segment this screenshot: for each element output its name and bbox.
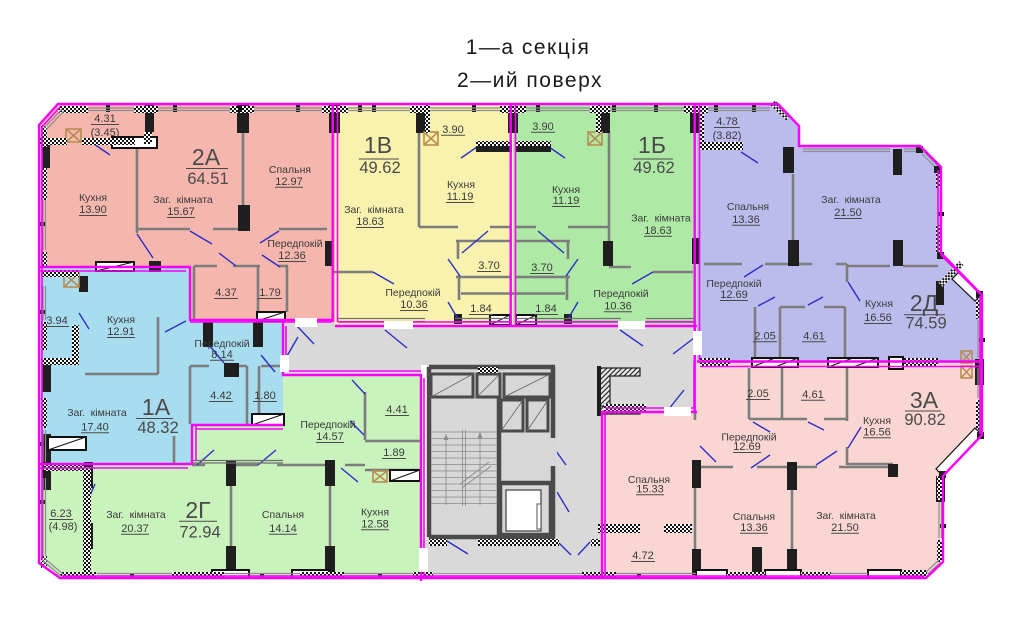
svg-text:20.37: 20.37 [121, 523, 149, 535]
svg-text:3.70: 3.70 [478, 260, 499, 272]
svg-text:3.70: 3.70 [531, 262, 552, 274]
svg-text:1Б: 1Б [638, 132, 666, 158]
svg-text:11.19: 11.19 [447, 191, 474, 203]
svg-text:Спальня: Спальня [269, 164, 311, 176]
svg-text:4.72: 4.72 [632, 550, 653, 562]
svg-text:13.36: 13.36 [740, 522, 768, 534]
svg-text:Спальня: Спальня [262, 509, 304, 521]
svg-text:10.36: 10.36 [400, 299, 428, 311]
svg-text:12.97: 12.97 [275, 176, 303, 188]
svg-text:4.78: 4.78 [716, 116, 737, 128]
svg-text:14.14: 14.14 [269, 523, 297, 535]
svg-text:2А: 2А [192, 144, 221, 170]
svg-text:11.19: 11.19 [553, 195, 580, 207]
svg-text:2.05: 2.05 [754, 331, 775, 343]
svg-text:18.63: 18.63 [356, 216, 384, 228]
svg-text:14.57: 14.57 [316, 431, 344, 443]
svg-text:Заг. кімната: Заг. кімната [153, 194, 213, 206]
svg-text:2Г: 2Г [185, 497, 211, 523]
svg-text:4.41: 4.41 [386, 404, 407, 416]
svg-text:(3.45): (3.45) [91, 127, 120, 139]
svg-text:Передпокій: Передпокій [267, 238, 322, 250]
svg-text:21.50: 21.50 [834, 207, 862, 219]
svg-text:2.05: 2.05 [747, 388, 768, 400]
svg-text:Заг. кімната: Заг. кімната [344, 204, 404, 216]
svg-text:Заг. кімната: Заг. кімната [816, 510, 876, 522]
svg-text:48.32: 48.32 [137, 419, 178, 437]
svg-text:74.59: 74.59 [905, 315, 946, 333]
svg-text:4.61: 4.61 [803, 331, 824, 343]
svg-text:13.36: 13.36 [732, 214, 760, 226]
svg-text:72.94: 72.94 [179, 524, 220, 542]
svg-text:21.50: 21.50 [831, 522, 859, 534]
svg-text:1.84: 1.84 [470, 303, 491, 315]
svg-text:1.84: 1.84 [535, 303, 556, 315]
svg-text:1—а секція: 1—а секція [466, 36, 591, 59]
svg-text:12.36: 12.36 [278, 250, 306, 262]
svg-text:90.82: 90.82 [904, 411, 945, 429]
svg-text:Кухня: Кухня [447, 179, 475, 191]
svg-text:4.42: 4.42 [210, 390, 231, 402]
svg-text:3А: 3А [910, 387, 939, 413]
svg-text:8.14: 8.14 [211, 349, 232, 361]
svg-text:4.31: 4.31 [94, 113, 115, 125]
svg-text:Заг. кімната: Заг. кімната [821, 194, 881, 206]
svg-text:49.62: 49.62 [359, 159, 400, 177]
svg-text:12.91: 12.91 [107, 326, 135, 338]
svg-text:1.80: 1.80 [254, 390, 275, 402]
svg-text:Кухня: Кухня [863, 415, 891, 427]
svg-text:13.90: 13.90 [79, 204, 107, 216]
svg-text:3.94: 3.94 [46, 315, 67, 327]
svg-text:Заг. кімната: Заг. кімната [106, 509, 166, 521]
svg-text:16.56: 16.56 [863, 427, 891, 439]
svg-text:12.69: 12.69 [733, 441, 761, 453]
svg-text:3.90: 3.90 [532, 121, 553, 133]
svg-text:Кухня: Кухня [79, 192, 107, 204]
svg-text:6.23: 6.23 [50, 508, 71, 520]
svg-text:2—ий поверх: 2—ий поверх [457, 69, 603, 92]
svg-text:Передпокій: Передпокій [300, 419, 355, 431]
svg-text:15.67: 15.67 [167, 206, 195, 218]
svg-text:3.90: 3.90 [442, 124, 463, 136]
svg-text:12.69: 12.69 [720, 289, 748, 301]
svg-text:(4.98): (4.98) [49, 521, 78, 533]
svg-text:16.56: 16.56 [864, 312, 892, 324]
svg-text:1А: 1А [142, 394, 171, 420]
svg-text:Кухня: Кухня [865, 298, 893, 310]
svg-text:4.61: 4.61 [802, 389, 823, 401]
svg-text:4.37: 4.37 [215, 287, 236, 299]
svg-text:15.33: 15.33 [636, 484, 664, 496]
svg-text:2Д: 2Д [910, 290, 939, 316]
svg-text:64.51: 64.51 [187, 170, 228, 188]
svg-text:Кухня: Кухня [361, 507, 389, 519]
svg-text:Передпокій: Передпокій [593, 288, 648, 300]
svg-text:18.63: 18.63 [644, 225, 672, 237]
svg-text:Передпокій: Передпокій [385, 287, 440, 299]
svg-text:Кухня: Кухня [107, 314, 135, 326]
svg-text:1.89: 1.89 [383, 447, 404, 459]
svg-text:Спальня: Спальня [727, 201, 769, 213]
svg-text:(3.82): (3.82) [713, 130, 742, 142]
svg-text:Заг. кімната: Заг. кімната [67, 407, 127, 419]
svg-text:17.40: 17.40 [81, 422, 109, 434]
svg-text:Заг. кімната: Заг. кімната [631, 213, 691, 225]
svg-text:49.62: 49.62 [633, 159, 674, 177]
svg-text:10.36: 10.36 [604, 301, 632, 313]
svg-text:1.79: 1.79 [259, 287, 280, 299]
svg-text:12.58: 12.58 [361, 519, 389, 531]
svg-text:1В: 1В [364, 132, 392, 158]
